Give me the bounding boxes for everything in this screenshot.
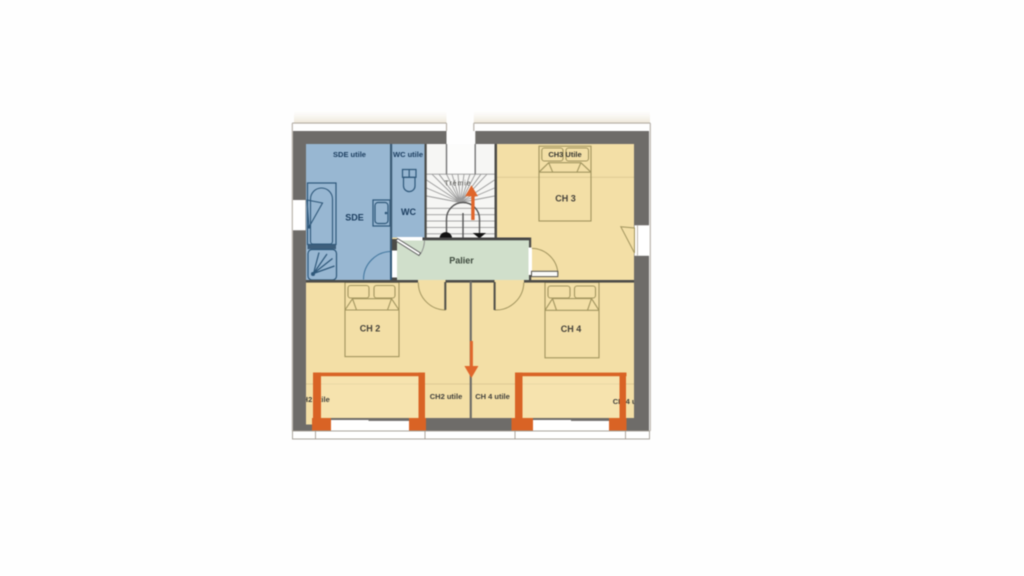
svg-text:CH 4 utile: CH 4 utile bbox=[475, 392, 510, 401]
svg-text:CH 2: CH 2 bbox=[360, 324, 381, 334]
svg-text:WC utile: WC utile bbox=[393, 150, 423, 159]
svg-text:SDE utile: SDE utile bbox=[333, 150, 366, 159]
svg-text:CH3 Utile: CH3 Utile bbox=[548, 150, 581, 159]
svg-text:CH2 utile: CH2 utile bbox=[430, 392, 463, 401]
svg-text:Palier: Palier bbox=[449, 255, 474, 265]
svg-text:CH 4: CH 4 bbox=[561, 324, 582, 334]
svg-text:WC: WC bbox=[401, 207, 416, 217]
svg-text:Trémie: Trémie bbox=[445, 181, 472, 188]
svg-text:SDE: SDE bbox=[345, 213, 364, 223]
svg-text:CH 3: CH 3 bbox=[555, 194, 576, 204]
